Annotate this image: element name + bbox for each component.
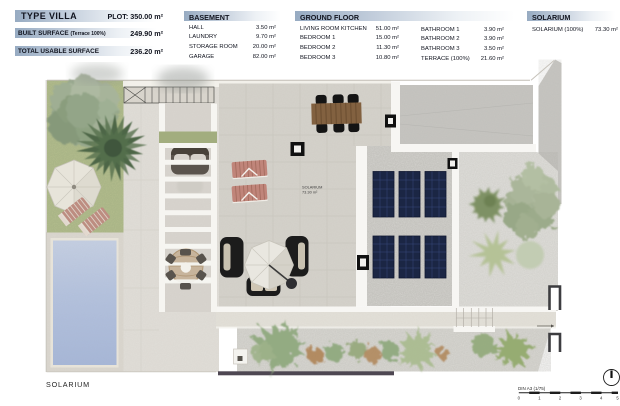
svg-text:73.30 m²: 73.30 m²	[302, 190, 318, 195]
svg-text:DIN A3 (1/75): DIN A3 (1/75)	[518, 386, 546, 391]
svg-text:4: 4	[600, 396, 603, 401]
svg-text:3: 3	[579, 396, 582, 401]
svg-text:SOLARIUM: SOLARIUM	[46, 380, 90, 389]
svg-text:1: 1	[538, 396, 541, 401]
svg-text:2: 2	[559, 396, 562, 401]
svg-text:5: 5	[616, 396, 619, 401]
svg-text:0: 0	[518, 396, 521, 401]
